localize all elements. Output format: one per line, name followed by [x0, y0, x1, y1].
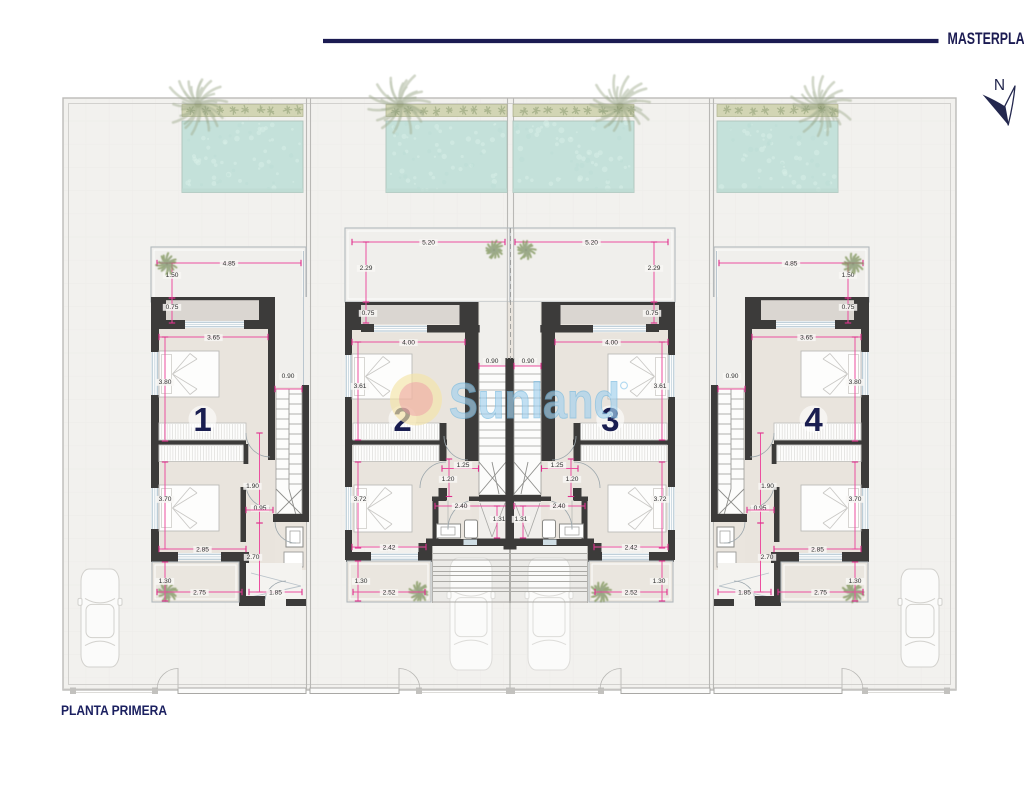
svg-text:1.31: 1.31 [515, 516, 528, 523]
svg-text:0.95: 0.95 [254, 505, 267, 512]
svg-text:2.42: 2.42 [625, 544, 638, 551]
svg-text:1.30: 1.30 [355, 578, 368, 585]
svg-text:3.65: 3.65 [207, 334, 220, 341]
svg-text:1: 1 [193, 401, 211, 438]
svg-text:5.20: 5.20 [585, 239, 598, 246]
svg-text:1.30: 1.30 [849, 578, 862, 585]
svg-text:0.75: 0.75 [166, 304, 179, 311]
svg-text:4.85: 4.85 [785, 260, 798, 267]
svg-text:2.29: 2.29 [648, 265, 661, 272]
svg-text:0.95: 0.95 [754, 505, 767, 512]
svg-text:1.30: 1.30 [159, 578, 172, 585]
svg-text:1.30: 1.30 [653, 578, 666, 585]
svg-text:MASTERPLAN: MASTERPLAN [948, 30, 1024, 48]
svg-text:2.75: 2.75 [814, 589, 827, 596]
svg-text:2.52: 2.52 [625, 589, 638, 596]
svg-text:0.75: 0.75 [842, 304, 855, 311]
svg-text:4: 4 [804, 401, 823, 438]
svg-text:2.85: 2.85 [196, 546, 209, 553]
svg-text:1.90: 1.90 [761, 483, 774, 490]
svg-text:1.20: 1.20 [442, 476, 455, 483]
svg-text:2.85: 2.85 [811, 546, 824, 553]
svg-text:1.85: 1.85 [738, 589, 751, 596]
svg-text:2.70: 2.70 [761, 554, 774, 561]
svg-text:0.75: 0.75 [646, 310, 659, 317]
svg-text:3.72: 3.72 [354, 496, 367, 503]
svg-text:2.42: 2.42 [383, 544, 396, 551]
svg-text:1.85: 1.85 [269, 589, 282, 596]
svg-text:Sunland: Sunland [449, 373, 620, 429]
svg-text:2.70: 2.70 [247, 554, 260, 561]
svg-text:1.90: 1.90 [246, 483, 259, 490]
svg-text:1.25: 1.25 [551, 462, 564, 469]
svg-text:5.20: 5.20 [422, 239, 435, 246]
svg-text:0.90: 0.90 [726, 373, 739, 380]
svg-text:3.61: 3.61 [654, 383, 667, 390]
svg-text:0.90: 0.90 [486, 358, 499, 365]
svg-text:4.00: 4.00 [402, 339, 415, 346]
svg-text:PLANTA PRIMERA: PLANTA PRIMERA [61, 703, 167, 719]
svg-text:3.65: 3.65 [800, 334, 813, 341]
svg-text:3.80: 3.80 [849, 379, 862, 386]
svg-text:0.75: 0.75 [362, 310, 375, 317]
svg-text:3.70: 3.70 [159, 496, 172, 503]
svg-text:N: N [994, 77, 1005, 94]
svg-text:2.29: 2.29 [360, 265, 373, 272]
svg-text:3.72: 3.72 [654, 496, 667, 503]
svg-text:4.00: 4.00 [605, 339, 618, 346]
svg-text:2.75: 2.75 [193, 589, 206, 596]
svg-text:2.40: 2.40 [455, 503, 468, 510]
svg-text:1.20: 1.20 [566, 476, 579, 483]
svg-text:3.80: 3.80 [159, 379, 172, 386]
svg-text:3.70: 3.70 [849, 496, 862, 503]
svg-text:1.31: 1.31 [493, 516, 506, 523]
svg-text:2.40: 2.40 [553, 503, 566, 510]
svg-text:0.90: 0.90 [522, 358, 535, 365]
svg-text:2.52: 2.52 [383, 589, 396, 596]
svg-text:0.90: 0.90 [282, 373, 295, 380]
svg-text:4.85: 4.85 [223, 260, 236, 267]
svg-text:3.61: 3.61 [354, 383, 367, 390]
svg-text:1.25: 1.25 [457, 462, 470, 469]
